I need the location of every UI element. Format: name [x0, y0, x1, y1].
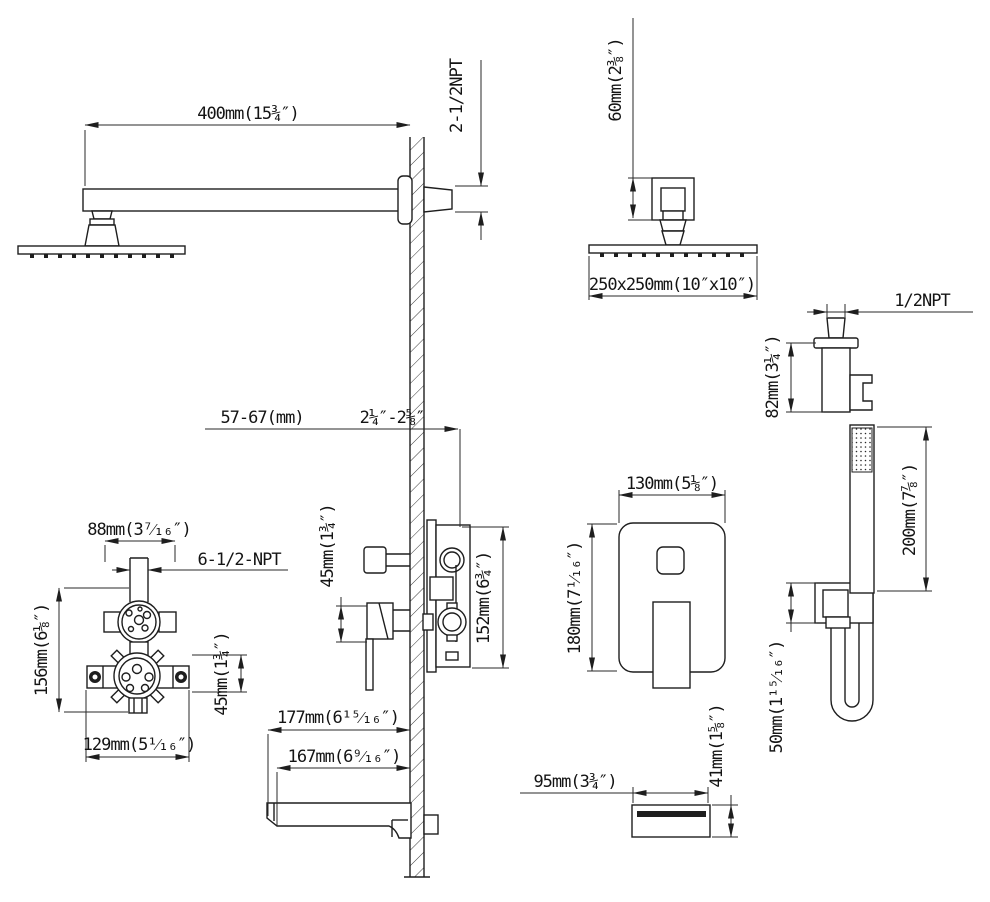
plate-width-label: 130mm(5⅛″): [626, 474, 718, 494]
handle-front: [653, 602, 690, 688]
valve-front-view: [87, 558, 189, 713]
holder-thread-label: 1/2NPT: [894, 291, 950, 311]
shower-head-side-view: [589, 178, 757, 257]
valve-thread-label: 6-1/2-NPT: [197, 550, 281, 570]
diverter-knob-side: [364, 547, 386, 573]
dim-valve-thread: 6-1/2-NPT: [112, 550, 288, 570]
shower-arm-side-view: [18, 176, 452, 258]
holder-height-label: 82mm(3¼″): [763, 335, 783, 418]
dim-spout-width: 95mm(3¾″): [520, 772, 708, 803]
valve-port-offset-label: 45mm(1¾″): [318, 504, 338, 587]
dim-shower-arm-length: 400mm(15¾″): [85, 104, 410, 186]
plate-height-label: 180mm(7¹⁄₁₆″): [565, 542, 585, 655]
dim-plate-width: 130mm(5⅛″): [619, 474, 725, 523]
dim-arm-wall-thread: 2-1/2NPT: [447, 58, 488, 240]
head-mount-height-label: 60mm(2⅜″): [606, 38, 626, 121]
rough-in-depth-mm-label: 57-67(mm): [220, 408, 303, 428]
spout-length-body-label: 167mm(6⁹⁄₁₆″): [288, 747, 401, 767]
tub-spout-front-view: [632, 805, 710, 837]
spout-length-overall-label: 177mm(6¹⁵⁄₁₆″): [277, 708, 399, 728]
spout-width-label: 95mm(3¾″): [533, 772, 616, 792]
handle-lever-side: [366, 639, 373, 690]
wall-section-hatch: [404, 137, 430, 877]
shower-arm-length-label: 400mm(15¾″): [197, 104, 299, 124]
arm-thread-label: 2-1/2NPT: [447, 58, 467, 133]
valve-bottom-width-label: 129mm(5¹⁄₁₆″): [83, 735, 196, 755]
hand-shower-holder: [814, 318, 872, 412]
dim-hand-shower-length: 200mm(7⅞″): [877, 427, 932, 591]
rough-in-depth-in-label: 2¼″-2⅝″: [360, 408, 425, 428]
head-size-label: 250x250mm(10″x10″): [589, 275, 755, 295]
dim-valve-top-width: 88mm(3⁷⁄₁₆″): [87, 520, 190, 562]
hand-shower-length-label: 200mm(7⅞″): [900, 464, 920, 556]
spout-opening: [637, 811, 706, 817]
dim-head-size: 250x250mm(10″x10″): [589, 256, 757, 300]
dim-holder-thread: 1/2NPT: [807, 291, 973, 317]
hose-nut: [826, 617, 850, 628]
hand-shower: [815, 425, 874, 721]
diverter-button: [657, 547, 684, 574]
dim-spout-height: 41mm(1⅝″): [707, 704, 738, 837]
technical-drawing-canvas: 400mm(15¾″) 2-1/2NPT 60mm(2⅜″): [0, 0, 990, 902]
dim-plate-height: 180mm(7¹⁄₁₆″): [565, 524, 617, 671]
wand-spray-face: [852, 428, 872, 472]
shower-system-spec-drawing: 400mm(15¾″) 2-1/2NPT 60mm(2⅜″): [0, 0, 990, 902]
valve-top-width-label: 88mm(3⁷⁄₁₆″): [87, 520, 190, 540]
dim-valve-offset-front: 45mm(1¾″): [192, 632, 247, 715]
spout-wall-stub: [424, 815, 438, 834]
outlet-height-label: 50mm(1¹⁵⁄₁₆″): [767, 641, 787, 754]
dim-valve-port-offset-side: 45mm(1¾″): [318, 504, 367, 642]
holder-bracket: [850, 375, 872, 410]
trim-plate-front-view: [619, 523, 725, 688]
valve-offset-front-label: 45mm(1¾″): [212, 632, 232, 715]
dim-outlet-height: 50mm(1¹⁵⁄₁₆″): [767, 583, 817, 753]
valve-height-label: 156mm(6⅛″): [32, 604, 52, 696]
valve-body-height-label: 152mm(6¾″): [474, 552, 494, 644]
spout-height-label: 41mm(1⅝″): [707, 704, 727, 787]
